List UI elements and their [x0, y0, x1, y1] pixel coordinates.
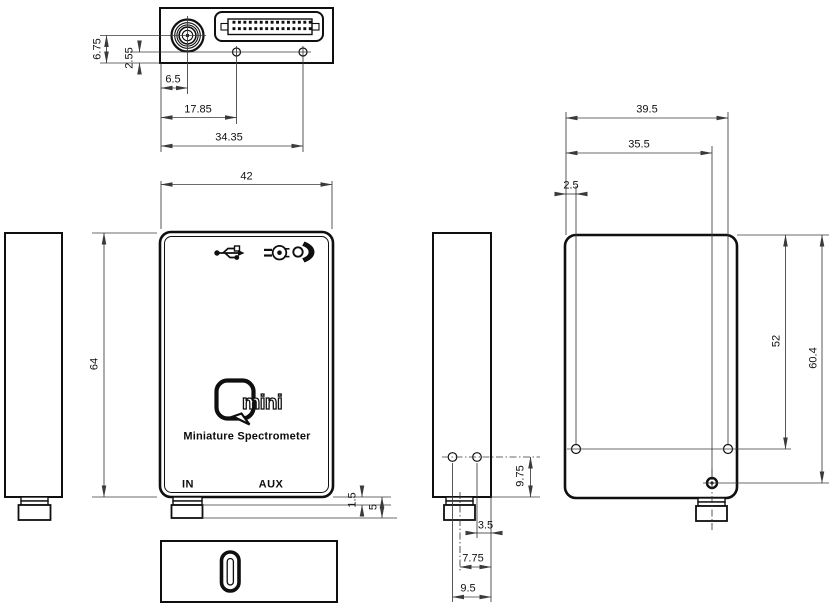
dim-side-hole-bottom: 9.75 [515, 465, 526, 486]
dim-side-usb-back: 7.75 [462, 554, 483, 565]
dim-hole1-x: 17.85 [184, 104, 212, 115]
usb-plug-profile [19, 497, 51, 520]
bottom-view [161, 541, 337, 602]
left-side-view [5, 233, 62, 520]
dim-body-height: 64 [90, 358, 101, 370]
dimensional-drawing: mini [0, 0, 833, 609]
dim-back-hole-right: 39.5 [636, 105, 657, 116]
dim-back-holes-top: 52 [772, 335, 783, 347]
drawing-linework: mini [0, 0, 833, 609]
dim-hole-height: 2.55 [125, 47, 136, 68]
back-view [565, 235, 737, 521]
dim-usb-step: 1.5 [347, 492, 358, 507]
logo-mini-text: mini [242, 391, 282, 414]
device-subtitle: Miniature Spectrometer [183, 432, 310, 443]
right-side-view [433, 233, 491, 520]
usb-plug-side [444, 497, 475, 520]
dim-sma-x: 6.5 [165, 75, 180, 86]
port-in-label: IN [182, 480, 194, 491]
dim-sma-height: 6.75 [92, 38, 103, 59]
usb-plug-back [696, 498, 727, 521]
dim-hole2-x: 34.35 [215, 133, 243, 144]
width-dimension [161, 181, 332, 229]
front-view: mini [160, 232, 333, 518]
height-dimension [92, 233, 157, 497]
dim-back-hole-lower-x: 35.5 [628, 140, 649, 151]
dim-side-hole2-back: 3.5 [478, 521, 493, 532]
dim-usb-total: 5 [368, 504, 379, 510]
dim-back-hole-left: 2.5 [563, 181, 578, 192]
dim-body-width: 42 [240, 171, 252, 182]
dim-back-lower-top: 60.4 [808, 347, 819, 368]
usb-plug-front [172, 497, 203, 518]
dim-side-hole1-back: 9.5 [460, 584, 475, 595]
port-aux-label: AUX [259, 480, 284, 491]
